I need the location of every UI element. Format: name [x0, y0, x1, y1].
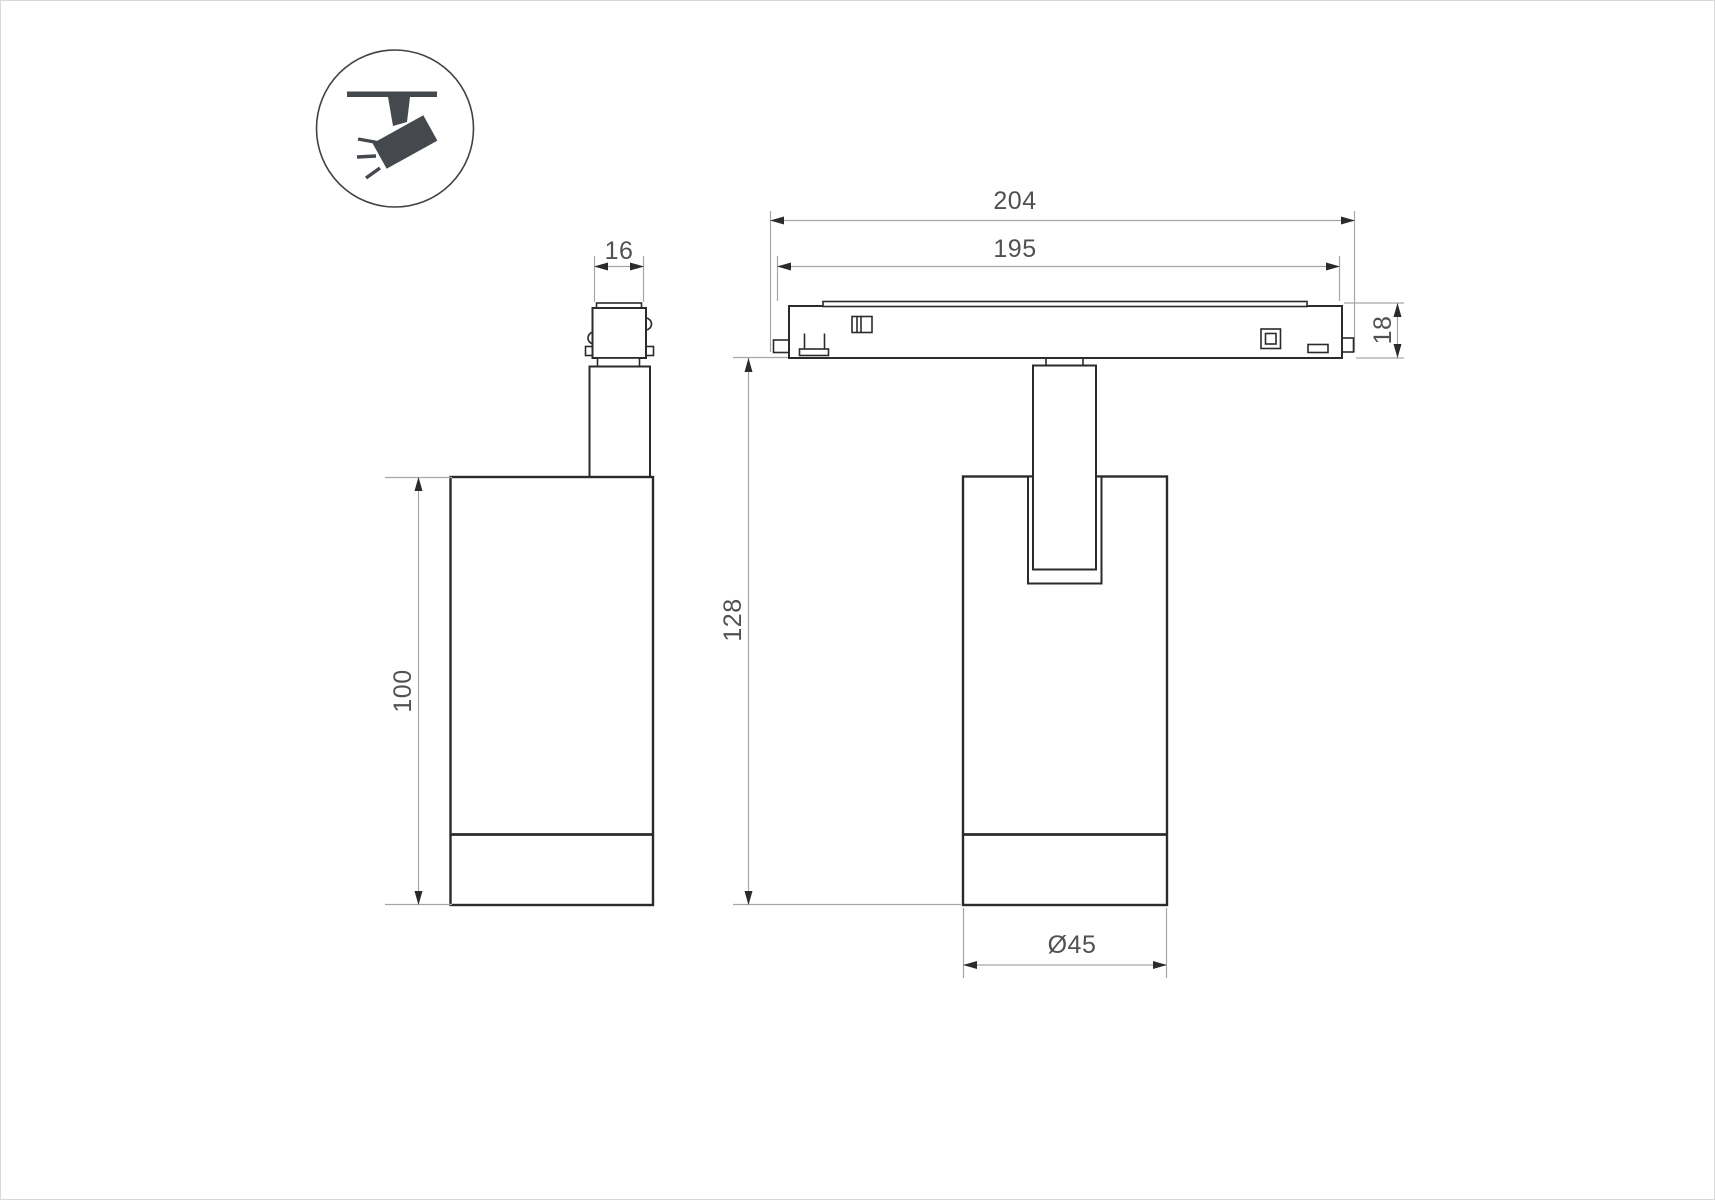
- front-track-latch: [1308, 345, 1328, 353]
- drawing-canvas: 16 100: [0, 0, 1715, 1200]
- dimension-label: 128: [719, 598, 747, 641]
- front-track-tab-left: [774, 340, 790, 353]
- side-adapter-box: [593, 308, 647, 358]
- dimension-track-inner-length: 195: [777, 235, 1340, 301]
- dimension-body-height: 100: [385, 477, 452, 905]
- side-stem: [590, 367, 651, 478]
- dimension-adapter-width: 16: [594, 237, 644, 302]
- arrowhead: [1153, 961, 1167, 969]
- front-track-screw-right: [1261, 329, 1281, 349]
- icon-light-ray: [357, 156, 376, 157]
- arrowhead: [1394, 344, 1402, 358]
- arrowhead: [963, 961, 977, 969]
- dimension-label: 16: [605, 237, 634, 265]
- arrowhead: [1341, 217, 1355, 225]
- arrowhead: [770, 217, 784, 225]
- front-track-rail-strip: [823, 302, 1307, 307]
- icon-ceiling-bar: [347, 92, 437, 98]
- arrowhead: [745, 358, 753, 372]
- side-adapter-neck: [598, 358, 640, 367]
- arrowhead: [1326, 263, 1340, 271]
- arrowhead: [1394, 303, 1402, 317]
- front-track-tab-right: [1342, 338, 1354, 352]
- front-view: 204 195: [719, 187, 1404, 978]
- technical-drawing-page: 16 100: [0, 0, 1715, 1200]
- arrowhead: [777, 263, 791, 271]
- side-view: 16 100: [385, 237, 654, 905]
- track-spotlight-icon: [317, 50, 474, 207]
- front-stem-flange: [1046, 358, 1083, 366]
- arrowhead: [415, 477, 423, 491]
- dimension-label: 204: [993, 187, 1036, 215]
- side-body: [451, 477, 654, 905]
- front-track-screw-left: [852, 317, 872, 333]
- front-stem: [1033, 366, 1096, 570]
- dimension-hanging-height: 128: [719, 358, 961, 906]
- dimension-label: Ø45: [1048, 931, 1097, 959]
- arrowhead: [415, 891, 423, 905]
- dimension-label: 18: [1369, 316, 1397, 345]
- icon-circle: [317, 50, 474, 207]
- dimension-body-diameter: Ø45: [963, 908, 1167, 978]
- dimension-label: 100: [389, 669, 417, 712]
- arrowhead: [745, 891, 753, 905]
- dimension-label: 195: [993, 235, 1036, 263]
